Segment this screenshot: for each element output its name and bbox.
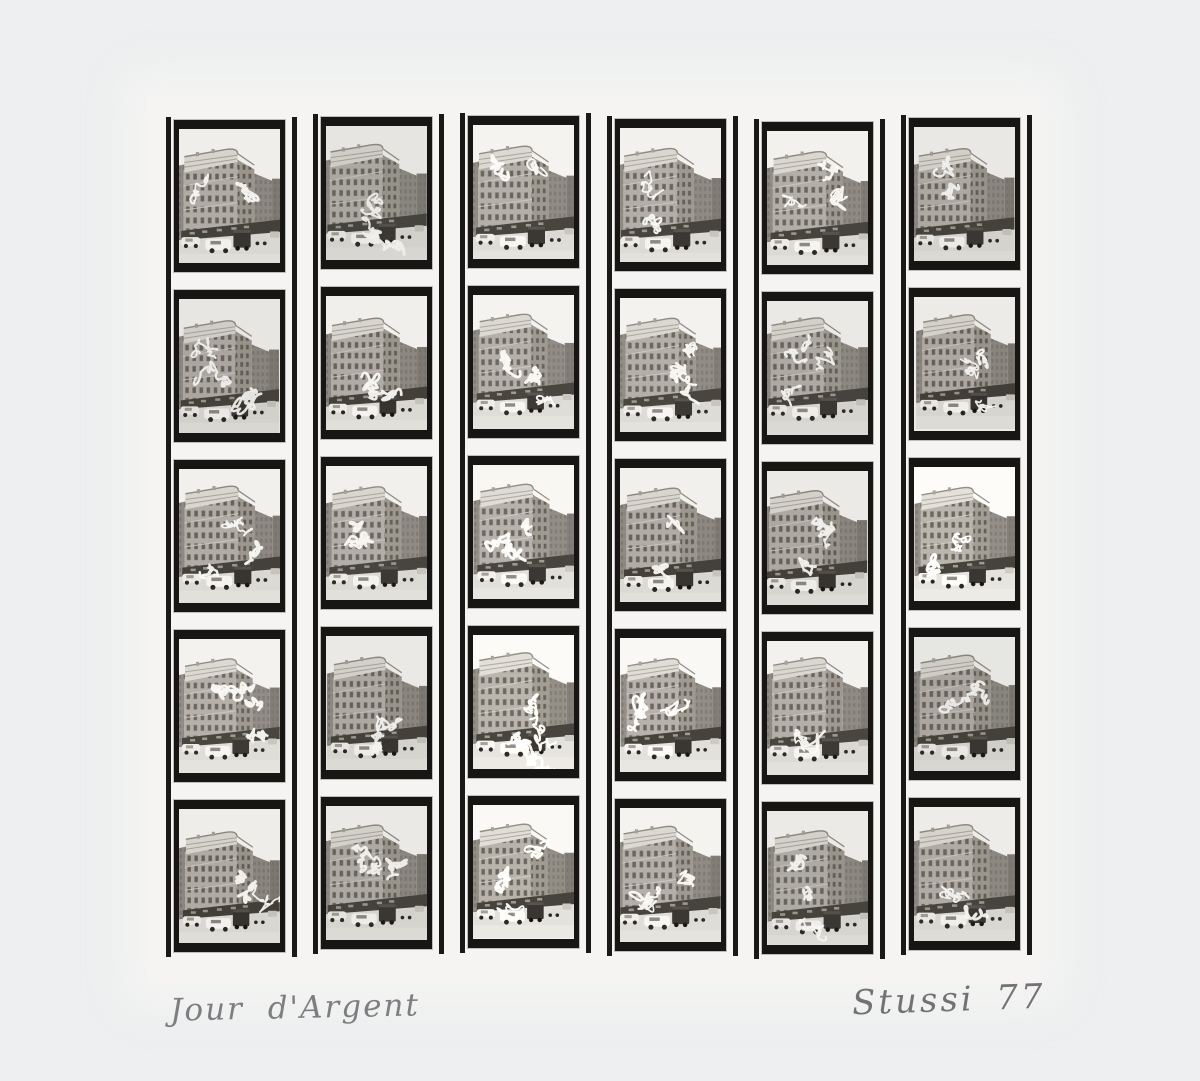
film-frame [909,118,1020,270]
film-frame [468,286,579,438]
frame-photo [179,469,280,603]
contact-sheet-grid [166,116,1032,948]
film-frame [762,632,873,784]
frame-photo [767,641,868,775]
frame-photo [326,466,427,600]
frame-photo [914,467,1015,601]
film-frame [174,120,285,272]
frame-photo [767,471,868,605]
film-frame [615,799,726,951]
film-frame [174,800,285,952]
film-strip [166,120,297,952]
frame-photo [326,126,427,260]
frame-photo [767,131,868,265]
frame-photo [767,811,868,945]
film-frame [468,456,579,608]
frame-photo [914,637,1015,771]
film-frame [762,462,873,614]
film-strip [754,122,885,954]
film-frame [321,627,432,779]
film-strip [901,118,1032,950]
film-frame [909,288,1020,440]
frame-photo [326,636,427,770]
film-frame [615,289,726,441]
frame-photo [620,468,721,602]
frame-photo [473,125,574,259]
film-frame [174,460,285,612]
frame-photo [473,635,574,769]
film-frame [321,797,432,949]
film-frame [762,122,873,274]
frame-photo [179,639,280,773]
film-strip [460,116,591,948]
frame-photo [620,298,721,432]
film-frame [615,459,726,611]
frame-photo [767,301,868,435]
frame-photo [620,638,721,772]
film-frame [468,796,579,948]
film-frame [321,457,432,609]
frame-photo [473,295,574,429]
film-frame [909,628,1020,780]
frame-photo [914,297,1015,431]
film-frame [468,116,579,268]
frame-photo [914,127,1015,261]
frame-photo [914,807,1015,941]
film-frame [762,292,873,444]
film-frame [174,630,285,782]
film-frame [909,798,1020,950]
film-strip [313,117,444,949]
film-frame [762,802,873,954]
frame-photo [620,128,721,262]
frame-photo [179,299,280,433]
artist-signature: Stussi 77 [851,977,1046,1024]
film-frame [909,458,1020,610]
frame-photo [326,806,427,940]
frame-photo [620,808,721,942]
film-frame [174,290,285,442]
frame-photo [473,465,574,599]
title-inscription: Jour d'Argent [170,987,421,1028]
artwork-photo-of-contact-sheet: Jour d'Argent Stussi 77 [0,0,1200,1081]
film-frame [615,119,726,271]
film-strip [607,119,738,951]
film-frame [321,287,432,439]
frame-photo [473,805,574,939]
frame-photo [179,809,280,943]
film-frame [321,117,432,269]
frame-photo [326,296,427,430]
frame-photo [179,129,280,263]
film-frame [615,629,726,781]
film-frame [468,626,579,778]
